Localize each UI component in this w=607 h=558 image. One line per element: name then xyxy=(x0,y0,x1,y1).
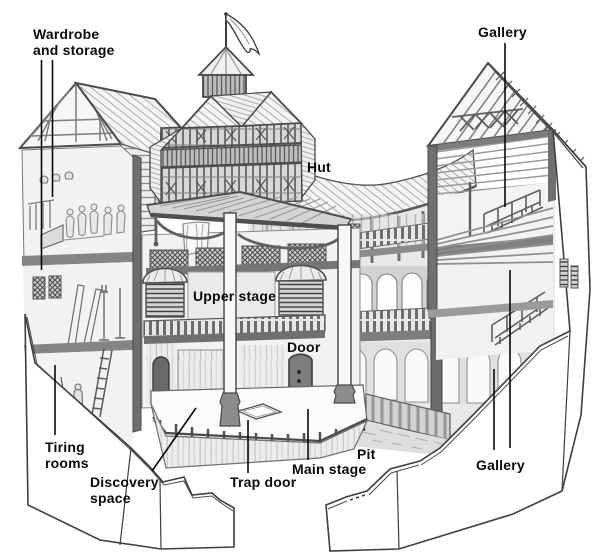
svg-text:space: space xyxy=(90,490,131,506)
svg-text:rooms: rooms xyxy=(45,455,89,471)
svg-text:Pit: Pit xyxy=(357,446,376,462)
svg-text:and storage: and storage xyxy=(33,42,115,58)
svg-text:Gallery: Gallery xyxy=(476,457,525,473)
svg-text:Upper stage: Upper stage xyxy=(193,288,276,304)
svg-text:Discovery: Discovery xyxy=(90,474,159,490)
svg-text:Trap door: Trap door xyxy=(230,474,297,490)
svg-text:Wardrobe: Wardrobe xyxy=(33,26,99,42)
svg-text:Gallery: Gallery xyxy=(478,24,527,40)
svg-text:Hut: Hut xyxy=(307,159,331,175)
svg-text:Door: Door xyxy=(287,339,321,355)
svg-text:Tiring: Tiring xyxy=(45,439,85,455)
svg-text:Main stage: Main stage xyxy=(292,461,366,477)
